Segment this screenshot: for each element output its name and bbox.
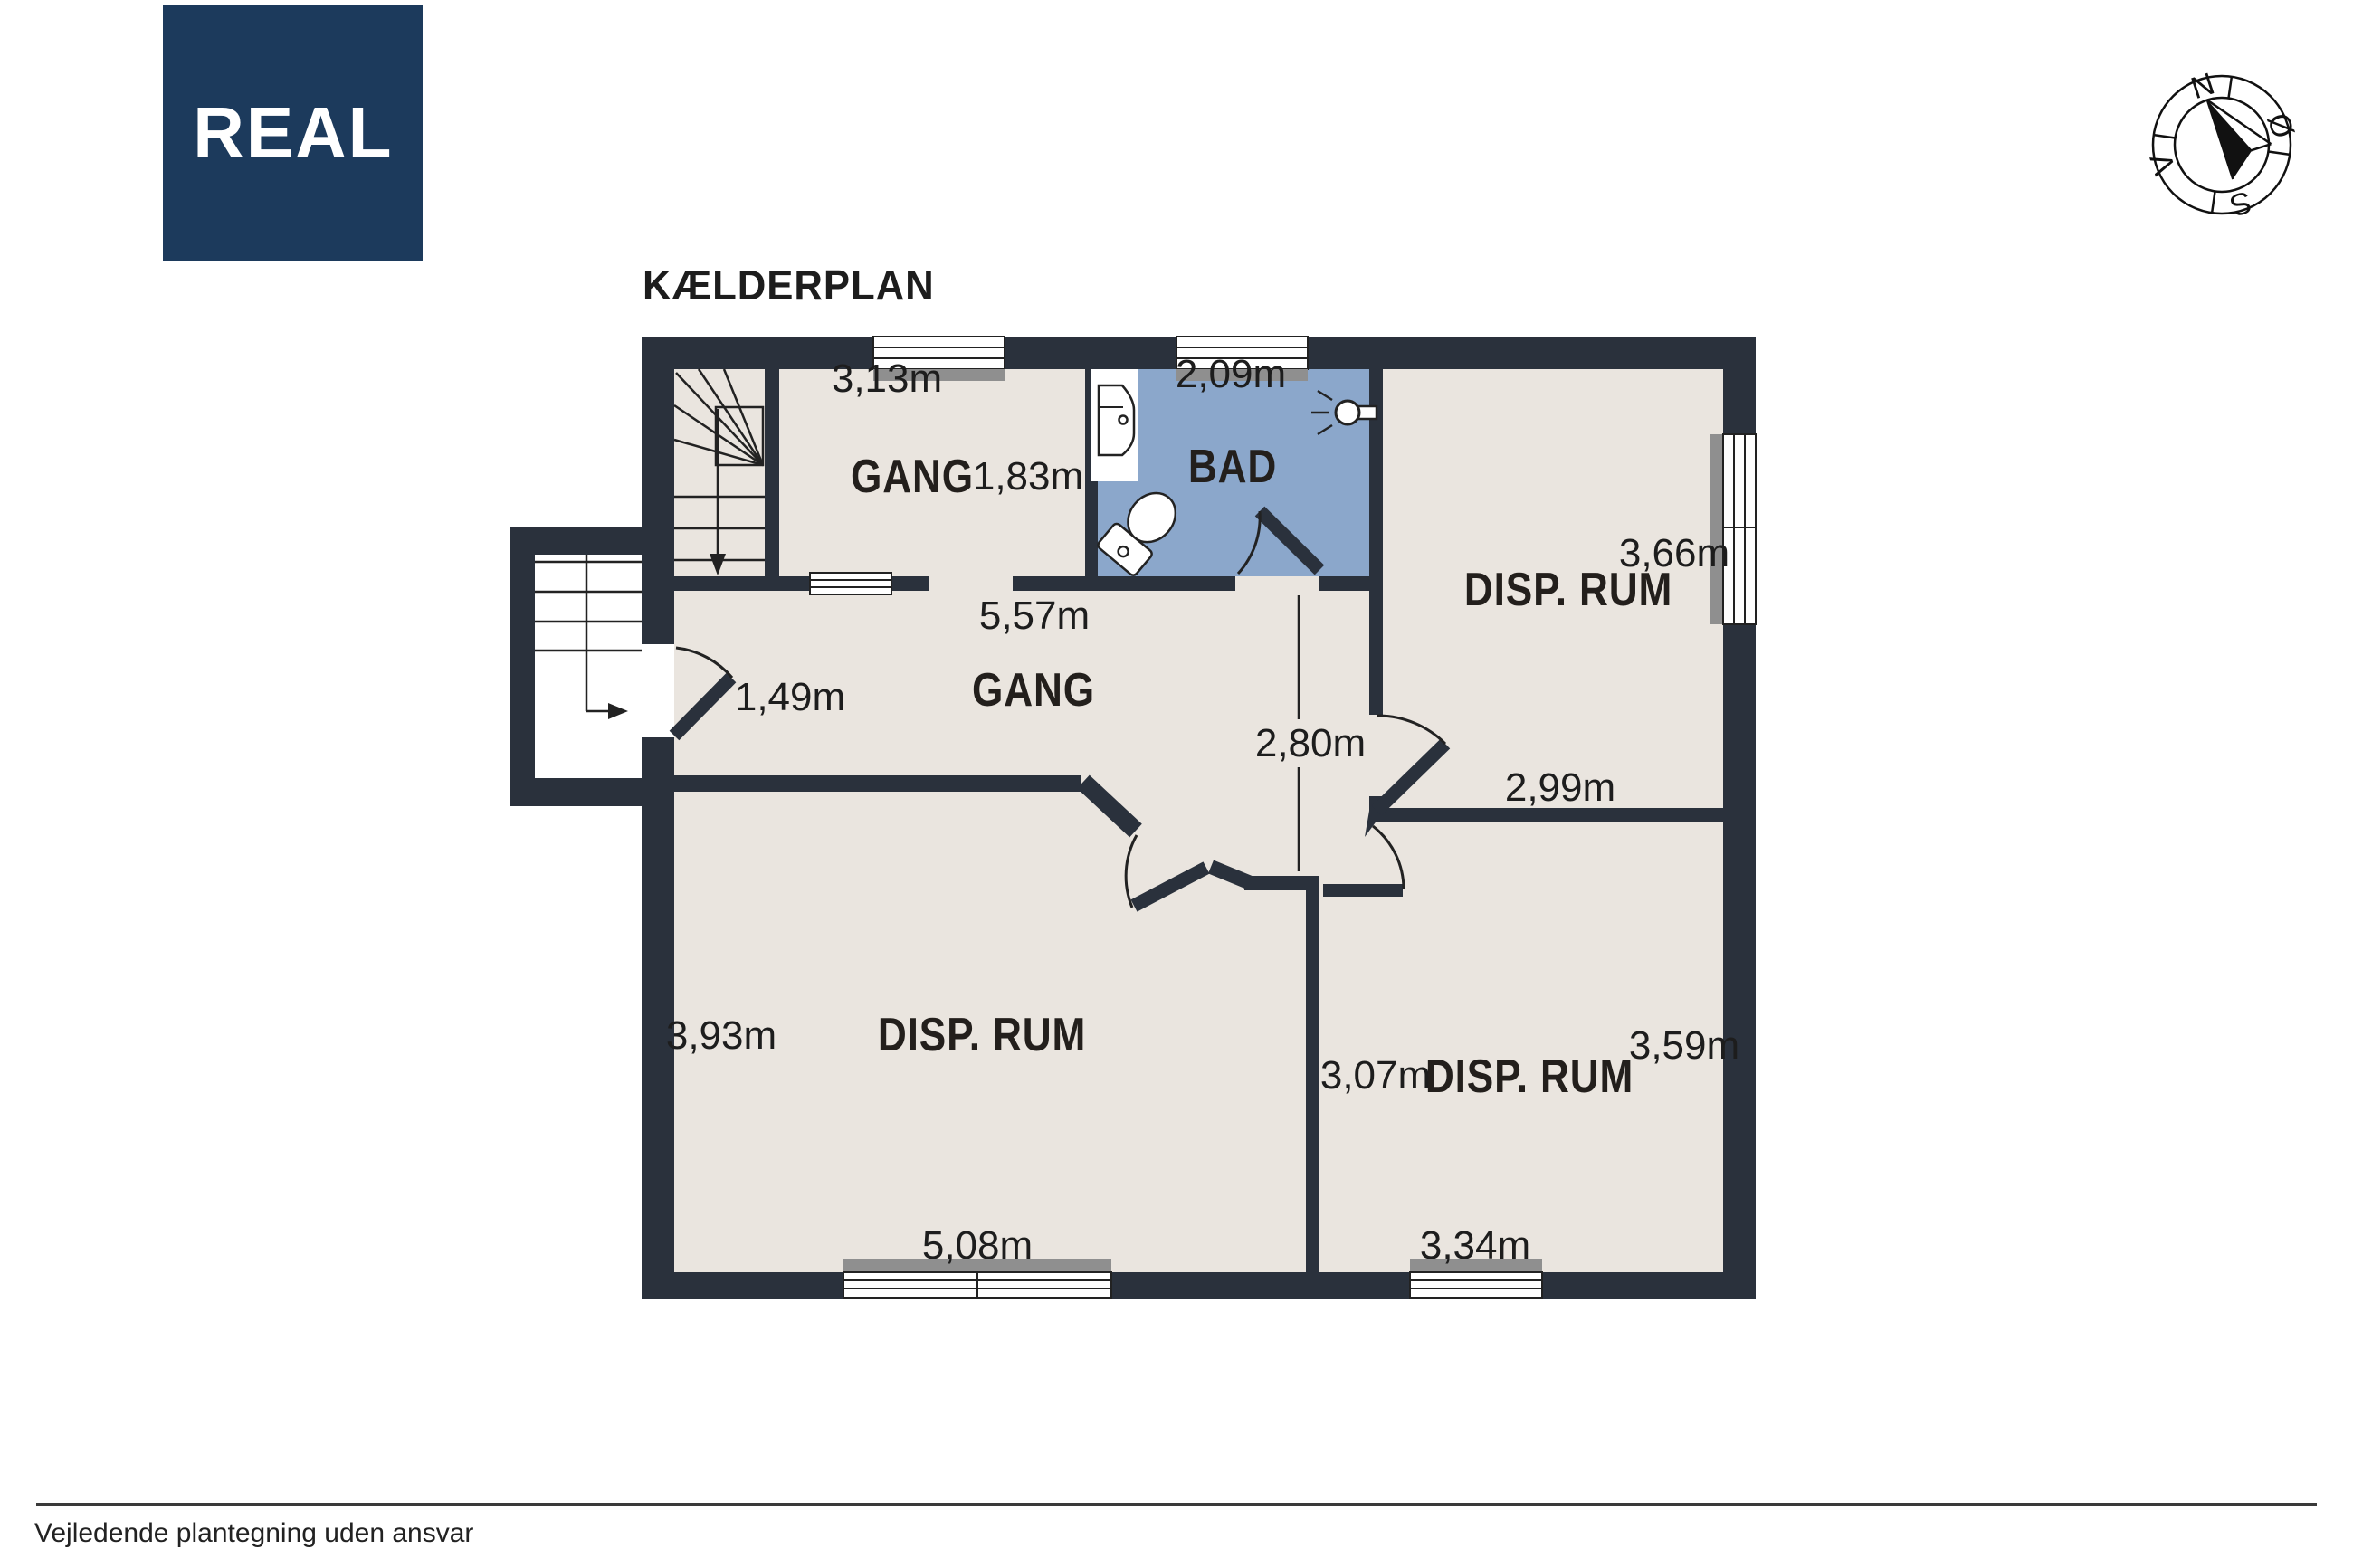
room-label-disp-rum-sw: DISP. RUM xyxy=(878,1008,1086,1062)
room-label-bad: BAD xyxy=(1188,440,1277,494)
exterior-stair-floor xyxy=(535,555,642,778)
real-logo-text: REAL xyxy=(193,91,393,175)
real-logo: REAL xyxy=(163,5,423,261)
room-label-disp-rum-se: DISP. RUM xyxy=(1425,1050,1634,1104)
compass-icon: N Ø S V xyxy=(2145,68,2299,222)
dimension-label: 1,83m xyxy=(973,454,1083,499)
window-interior xyxy=(810,573,891,594)
dimension-label: 1,49m xyxy=(735,675,845,720)
dimension-label: 3,93m xyxy=(666,1013,776,1059)
footer-divider xyxy=(36,1503,2317,1506)
dimension-label: 5,57m xyxy=(979,594,1090,639)
sink-icon xyxy=(1091,369,1138,481)
dimension-label: 3,34m xyxy=(1420,1223,1530,1269)
dimension-label: 2,09m xyxy=(1176,352,1286,397)
plan-title: KÆLDERPLAN xyxy=(643,261,935,309)
dimension-label: 3,13m xyxy=(832,356,942,402)
dimension-label: 3,59m xyxy=(1629,1023,1739,1069)
window-right xyxy=(1710,434,1756,624)
floorplan-page: N Ø S V REAL KÆLDERPLAN GANG BAD DISP. R… xyxy=(0,0,2353,1568)
dimension-label: 2,99m xyxy=(1505,765,1615,811)
dimension-label: 5,08m xyxy=(922,1223,1033,1269)
dimension-label: 3,07m xyxy=(1320,1053,1431,1098)
dimension-label: 2,80m xyxy=(1255,721,1366,766)
room-label-gang-upper: GANG xyxy=(851,450,974,504)
room-label-gang-center: GANG xyxy=(972,663,1095,717)
footer-disclaimer: Vejledende plantegning uden ansvar xyxy=(34,1518,473,1549)
dimension-label: 3,66m xyxy=(1619,531,1729,576)
